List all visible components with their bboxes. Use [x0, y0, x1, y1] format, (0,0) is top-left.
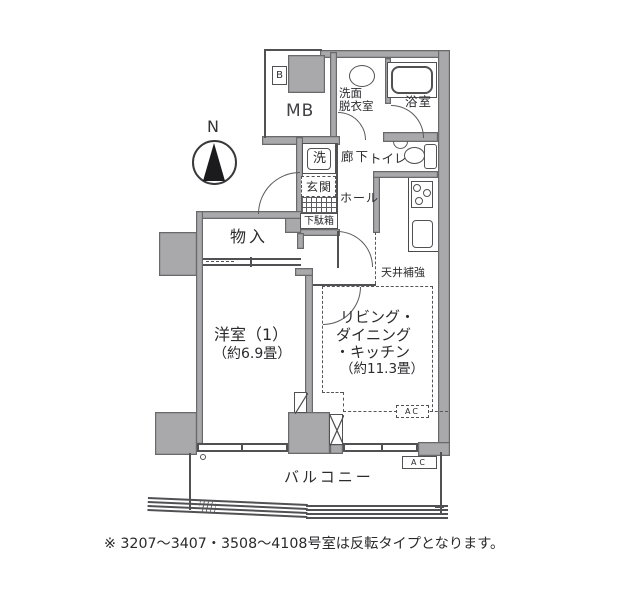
- hall-label: ホール: [340, 192, 379, 204]
- compass-needle-icon: [203, 143, 225, 181]
- window-cap: [286, 443, 288, 452]
- shaft-fill: [288, 55, 325, 93]
- toilet-tank-icon: [424, 144, 437, 169]
- kitchen-sink-icon: [412, 220, 433, 248]
- footnote-text: ※ 3207～3407・3508～4108号室は反転タイプとなります。: [104, 537, 504, 551]
- ceiling-zone-line: [432, 286, 433, 412]
- wall-segment: [288, 412, 330, 454]
- shaft-x-box: [329, 414, 343, 445]
- ldk-label-line3: ・キッチン: [335, 345, 410, 360]
- meter-box-label: MB: [286, 103, 314, 120]
- shoe-cabinet-label: 下駄箱: [304, 217, 334, 227]
- ac-balcony-label: AC: [411, 459, 428, 467]
- compass-n-label: N: [207, 119, 219, 135]
- x-cross-icon: [330, 415, 344, 446]
- washroom-label-line2: 脱衣室: [339, 101, 374, 113]
- window-mullion: [381, 443, 383, 452]
- ceiling-zone-line: [343, 392, 344, 412]
- pillar: [155, 412, 197, 455]
- ldk-door-arc: [337, 231, 373, 267]
- b-mark-box: B: [272, 66, 287, 85]
- balcony-label: バルコニー: [284, 470, 374, 485]
- closet-door-line: [203, 258, 301, 260]
- toilet-bowl-icon: [404, 147, 425, 164]
- western-room-name-label: 洋室（1）: [214, 327, 288, 343]
- stove-burner-icon: [423, 189, 431, 197]
- ceiling-zone-line: [322, 286, 433, 287]
- ac-indoor-label: AC: [405, 408, 420, 416]
- front-door-arc: [258, 172, 300, 214]
- basin-icon: [349, 65, 375, 87]
- wall-segment: [438, 50, 450, 456]
- entrance-tile-hatch: [301, 197, 336, 213]
- balcony-edge-line: [306, 505, 448, 507]
- wall-segment: [418, 442, 450, 456]
- ceiling-zone-line: [322, 286, 323, 393]
- stove-burner-icon: [413, 184, 421, 192]
- bath-door-arc: [391, 105, 424, 138]
- wall-segment: [320, 50, 450, 58]
- window-cap: [197, 443, 199, 452]
- ldk-door-leaf: [337, 231, 339, 268]
- toilet-label: トイレ: [369, 153, 407, 166]
- western-room-area-label: （約6.9畳）: [213, 347, 291, 361]
- stove-burner-icon: [415, 197, 423, 205]
- wall-segment: [330, 52, 337, 138]
- sleeve-diagonal-icon: [295, 393, 308, 414]
- wall-segment: [373, 171, 438, 178]
- washer-label: 洗: [313, 152, 326, 165]
- drain-icon: [200, 454, 206, 460]
- balcony-edge-line: [306, 517, 448, 519]
- window-mullion: [241, 443, 243, 452]
- ldk-label-line1: リビング・: [340, 310, 415, 325]
- washroom-door-arc: [338, 112, 366, 140]
- ac-box-indoor: AC: [396, 405, 429, 418]
- wall-segment: [300, 229, 340, 236]
- ceiling-reinforcement-label: 天井補強: [380, 267, 426, 278]
- bathroom-label: 浴室: [405, 96, 432, 109]
- ldk-label-line2: ダイニング: [336, 328, 411, 343]
- wall-line: [264, 49, 266, 138]
- closet-door-tick: [250, 257, 252, 267]
- sleeve-box: [294, 392, 307, 413]
- wall-segment: [297, 233, 304, 249]
- washroom-label-line1: 洗面: [339, 88, 362, 100]
- storage-label: 物入: [230, 229, 268, 245]
- balcony-edge-line: [306, 513, 448, 515]
- toilet-door-arc: [393, 141, 408, 149]
- corridor-label: 廊下: [341, 151, 370, 164]
- ldk-area-label: （約11.3畳）: [340, 363, 424, 377]
- wall-segment: [295, 268, 313, 276]
- pillar: [159, 232, 197, 276]
- wall-line: [264, 49, 322, 51]
- balcony-edge-slanted-group: [147, 497, 308, 522]
- closet-door-line: [203, 264, 301, 266]
- ceiling-zone-line: [322, 392, 343, 393]
- floor-plan-canvas: B MB 洗 玄関 下駄箱 AC AC: [0, 0, 640, 608]
- wall-segment: [196, 211, 203, 444]
- window-cap: [416, 443, 418, 452]
- entrance-label: 玄関: [306, 181, 332, 193]
- bathtub-icon: [391, 66, 433, 94]
- b-mark-label: B: [276, 71, 283, 81]
- balcony-edge-line: [306, 509, 448, 511]
- closet-pipe-dashed: [206, 261, 234, 262]
- ac-box-balcony: AC: [402, 456, 437, 469]
- ceiling-zone-line: [375, 232, 376, 284]
